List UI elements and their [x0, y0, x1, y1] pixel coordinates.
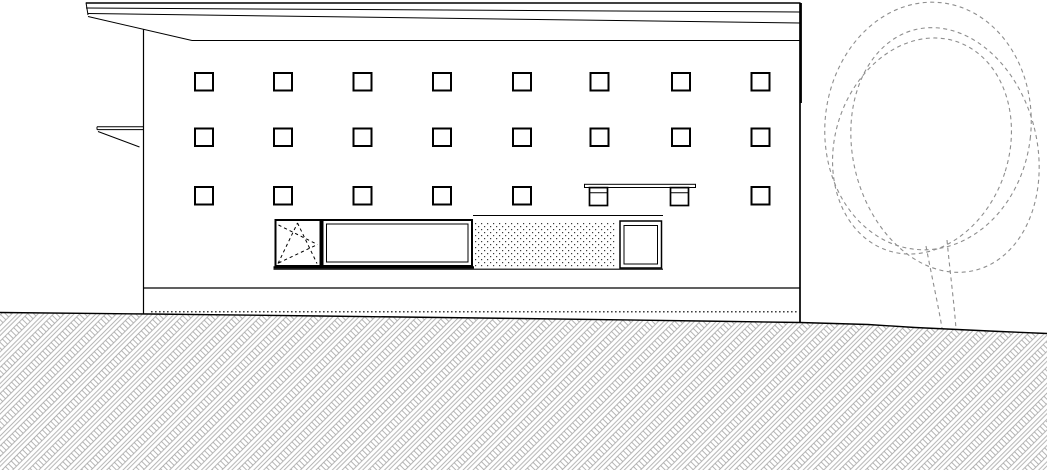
elevation-drawing: [0, 0, 1047, 470]
ground-hatch: [0, 313, 1047, 470]
tree: [805, 0, 1047, 329]
drawing-canvas: [0, 0, 1047, 470]
shopfront: [274, 216, 664, 270]
building-outline: [86, 3, 801, 323]
bench: [585, 184, 696, 205]
